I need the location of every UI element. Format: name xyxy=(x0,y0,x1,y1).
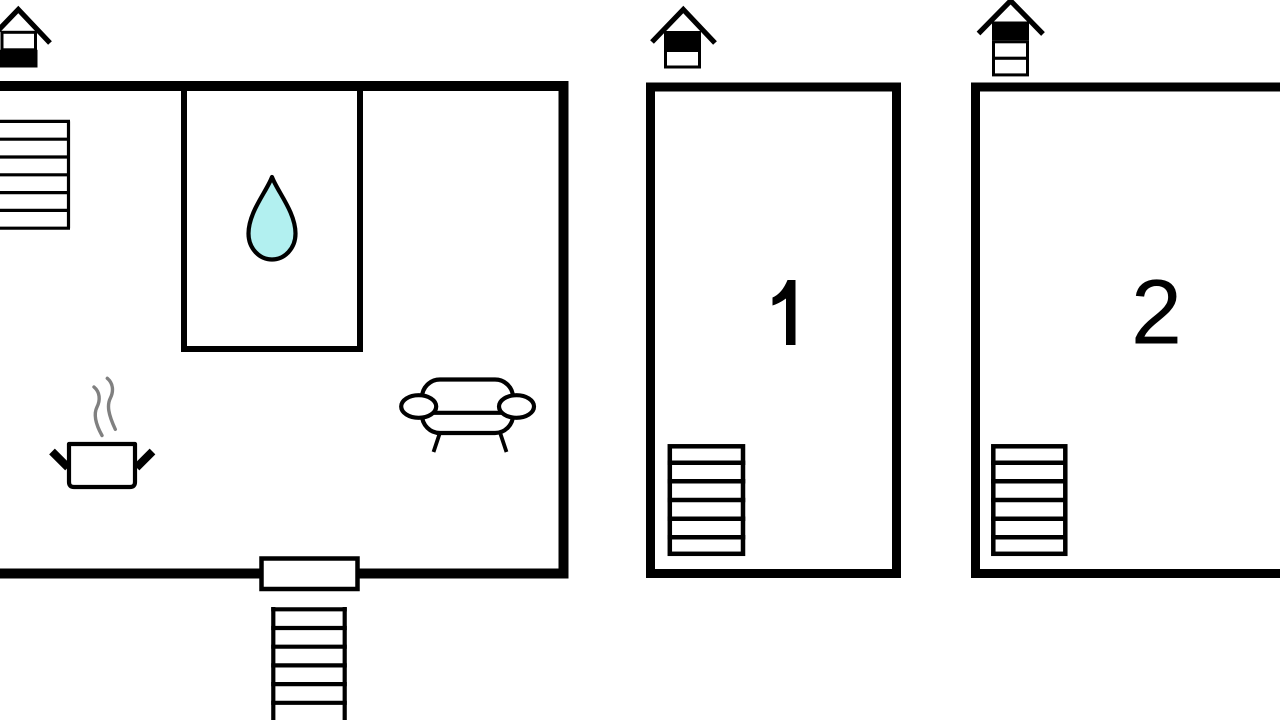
svg-text:2: 2 xyxy=(1131,262,1182,364)
